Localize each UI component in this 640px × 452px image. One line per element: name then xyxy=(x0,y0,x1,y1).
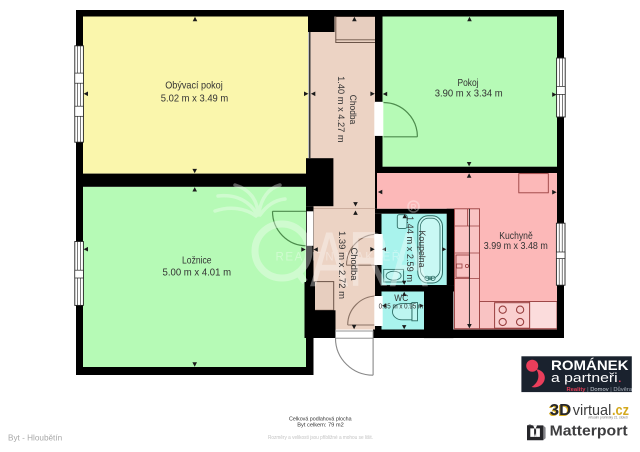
svg-text:Chodba: Chodba xyxy=(348,95,358,125)
svg-text:Obývací pokoj: Obývací pokoj xyxy=(165,80,223,92)
svg-text:3.90 m x 3.34 m: 3.90 m x 3.34 m xyxy=(435,88,503,100)
svg-text:virtuální prohlídky 21. stolet: virtuální prohlídky 21. století xyxy=(588,416,628,420)
svg-text:WC: WC xyxy=(394,293,408,304)
svg-text:Rozměry a velikosti jsou přibl: Rozměry a velikosti jsou přibližné a moh… xyxy=(268,435,373,441)
svg-text:5.02 m x 3.49 m: 5.02 m x 3.49 m xyxy=(161,92,229,104)
svg-text:1.39 m x 2.72 m: 1.39 m x 2.72 m xyxy=(337,231,347,299)
svg-text:Byt celkem: 79 m2: Byt celkem: 79 m2 xyxy=(297,423,344,429)
svg-text:0.85 m x 0.95 m: 0.85 m x 0.95 m xyxy=(379,303,424,310)
svg-text:1.44 m x 2.59 m: 1.44 m x 2.59 m xyxy=(405,216,415,282)
svg-text:Ložnice: Ložnice xyxy=(182,255,212,267)
svg-text:3.99 m x 3.48 m: 3.99 m x 3.48 m xyxy=(484,240,548,252)
svg-text:Chodba: Chodba xyxy=(349,248,359,281)
svg-text:a partneři.: a partneři. xyxy=(551,370,622,385)
svg-text:Koupelna: Koupelna xyxy=(417,231,427,268)
svg-text:5.00 m x 4.01 m: 5.00 m x 4.01 m xyxy=(163,267,232,279)
svg-text:Matterport: Matterport xyxy=(550,423,628,440)
svg-text:Celková podlahová plocha: Celková podlahová plocha xyxy=(289,417,352,423)
svg-text:R: R xyxy=(411,203,417,212)
svg-text:3D: 3D xyxy=(550,402,572,419)
svg-text:1.40 m x 4.27 m: 1.40 m x 4.27 m xyxy=(336,76,346,142)
svg-text:Reality | Domov | Důvěra: Reality | Domov | Důvěra xyxy=(567,386,633,393)
svg-text:Byt - Hloubětín: Byt - Hloubětín xyxy=(8,434,63,443)
